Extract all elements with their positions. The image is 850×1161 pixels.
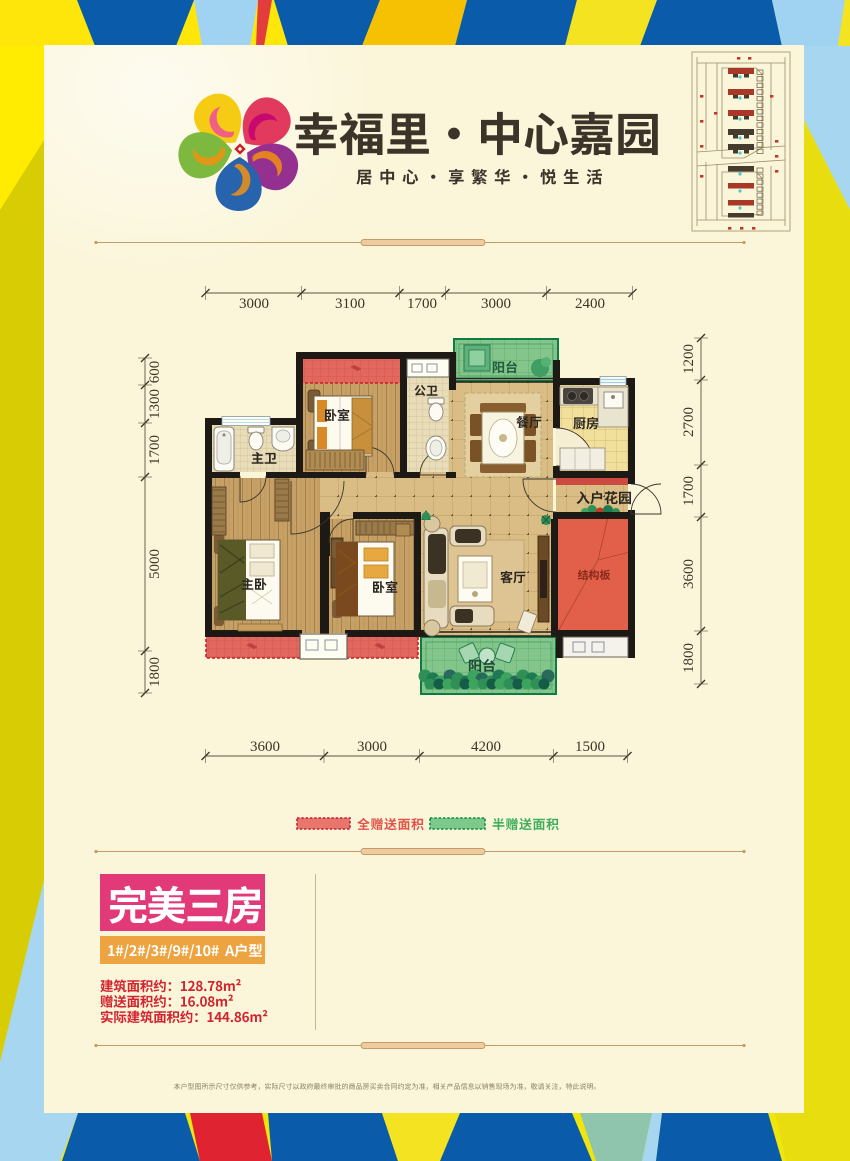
svg-text:5000: 5000 [147, 549, 163, 579]
svg-text:1200: 1200 [681, 344, 697, 374]
svg-text:3600: 3600 [681, 559, 697, 589]
svg-text:3000: 3000 [239, 296, 269, 312]
svg-text:600: 600 [147, 361, 163, 384]
svg-text:1700: 1700 [147, 435, 163, 465]
svg-text:3000: 3000 [357, 739, 387, 755]
svg-text:2400: 2400 [575, 296, 605, 312]
svg-text:2700: 2700 [681, 407, 697, 437]
svg-text:1800: 1800 [147, 657, 163, 687]
svg-text:1300: 1300 [147, 389, 163, 419]
svg-text:1500: 1500 [575, 739, 605, 755]
svg-text:1700: 1700 [681, 476, 697, 506]
svg-text:3100: 3100 [335, 296, 365, 312]
svg-text:4200: 4200 [471, 739, 501, 755]
svg-text:1700: 1700 [407, 296, 437, 312]
svg-text:3600: 3600 [250, 739, 280, 755]
svg-text:3000: 3000 [481, 296, 511, 312]
svg-text:1800: 1800 [681, 643, 697, 673]
